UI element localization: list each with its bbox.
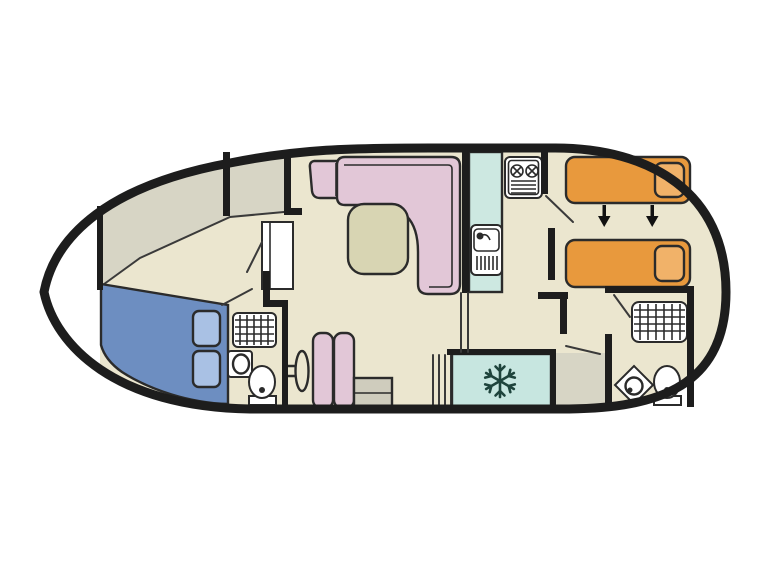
bed-pillow xyxy=(193,351,220,387)
wall xyxy=(284,150,291,212)
boat-floor-plan-svg xyxy=(0,0,768,576)
wall xyxy=(560,292,567,334)
wall xyxy=(282,300,288,407)
bench-seat xyxy=(334,333,354,408)
galley-sink xyxy=(471,225,502,275)
table xyxy=(348,204,408,274)
wall xyxy=(687,286,694,407)
bed-pillow xyxy=(655,246,684,281)
hob xyxy=(505,157,542,198)
wall xyxy=(605,334,612,407)
wall xyxy=(447,349,554,355)
wall xyxy=(605,286,693,293)
stern-landing xyxy=(556,353,606,407)
wall xyxy=(548,228,555,280)
wall xyxy=(541,150,548,194)
wall xyxy=(284,208,302,215)
bed-pillow xyxy=(193,311,220,346)
wall xyxy=(462,150,469,293)
floor-plan xyxy=(0,0,768,576)
toilet xyxy=(249,366,276,405)
wall xyxy=(550,349,556,407)
bench-seat xyxy=(313,333,333,408)
fridge-freezer xyxy=(452,354,551,406)
